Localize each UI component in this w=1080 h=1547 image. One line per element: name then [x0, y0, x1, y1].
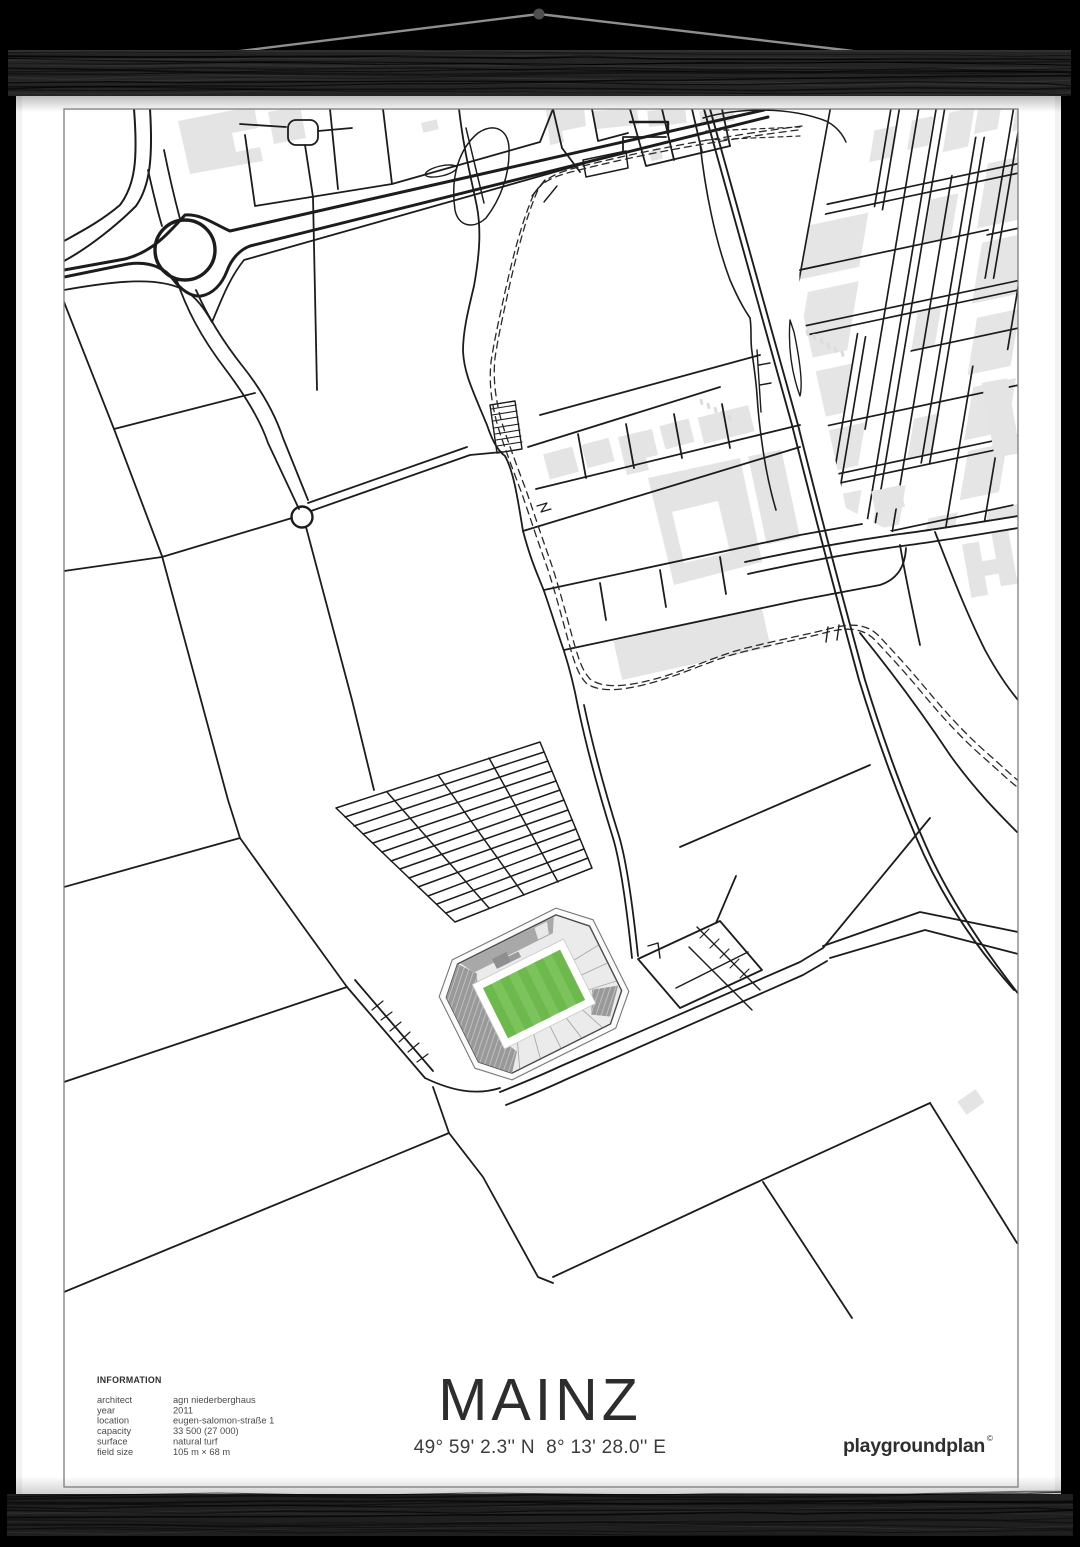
svg-text:49° 59' 2.3'' N 8° 13' 28.0'': 49° 59' 2.3'' N 8° 13' 28.0'' E	[414, 1437, 667, 1458]
svg-text:33 500 (27 000): 33 500 (27 000)	[173, 1426, 239, 1436]
svg-text:playgroundplan: playgroundplan	[843, 1435, 985, 1457]
svg-text:location: location	[97, 1416, 129, 1426]
svg-text:architect: architect	[97, 1395, 133, 1405]
svg-text:eugen-salomon-straße 1: eugen-salomon-straße 1	[173, 1416, 274, 1426]
svg-text:field size: field size	[97, 1447, 133, 1457]
svg-text:INFORMATION: INFORMATION	[97, 1375, 162, 1385]
svg-text:capacity: capacity	[97, 1426, 131, 1436]
svg-text:natural turf: natural turf	[173, 1436, 218, 1446]
svg-text:105 m × 68 m: 105 m × 68 m	[173, 1447, 230, 1457]
svg-text:2011: 2011	[173, 1405, 193, 1415]
svg-text:year: year	[97, 1405, 115, 1415]
svg-text:surface: surface	[97, 1436, 128, 1446]
svg-text:MAINZ: MAINZ	[438, 1367, 642, 1433]
svg-text:agn niederberghaus: agn niederberghaus	[173, 1395, 256, 1405]
svg-text:©: ©	[987, 1434, 993, 1443]
